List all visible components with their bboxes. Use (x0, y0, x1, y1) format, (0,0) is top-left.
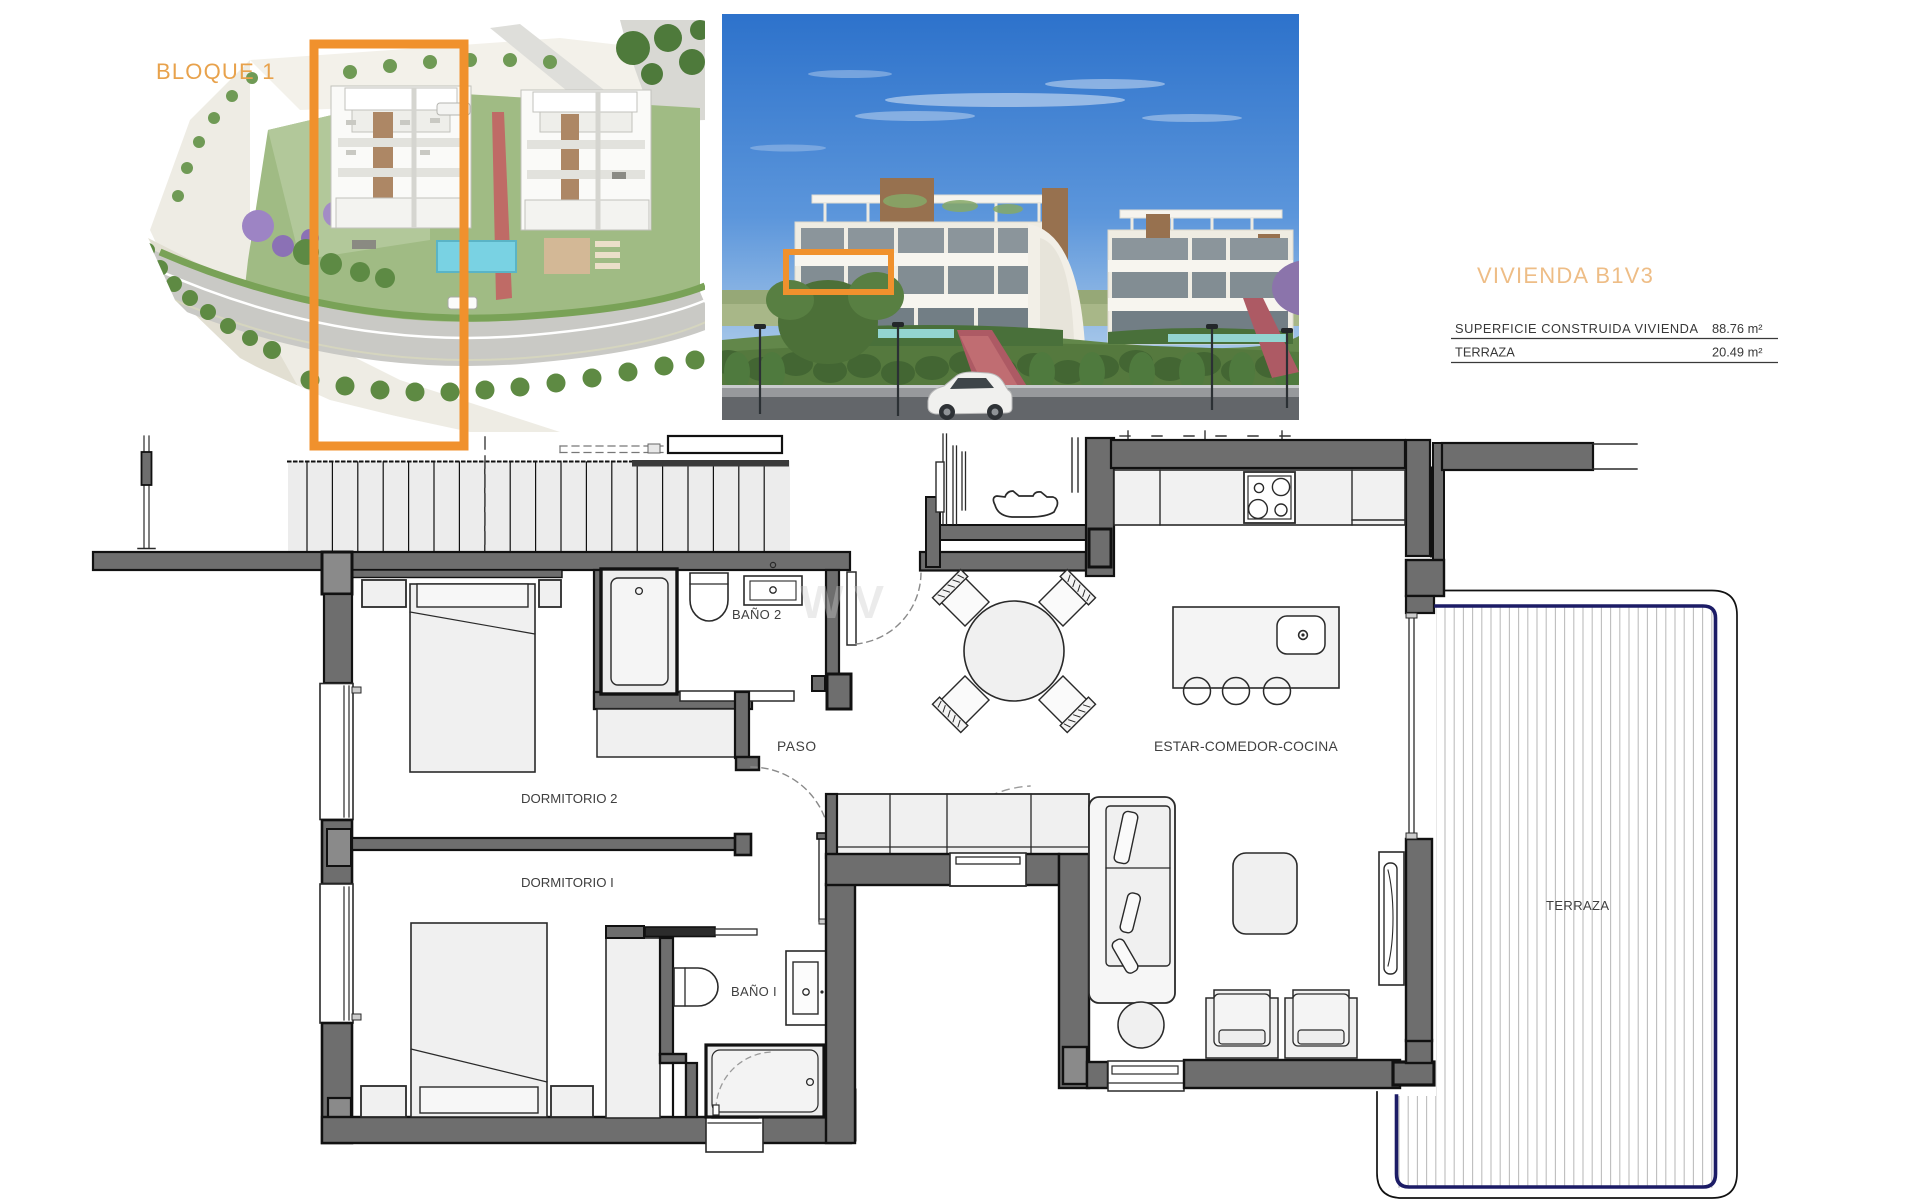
svg-text:88.76 m²: 88.76 m² (1712, 321, 1763, 336)
svg-text:BAÑO 2: BAÑO 2 (732, 607, 781, 622)
svg-text:BAÑO I: BAÑO I (731, 984, 777, 999)
svg-text:DORMITORIO I: DORMITORIO I (521, 875, 614, 890)
svg-text:BLOQUE 1: BLOQUE 1 (156, 59, 276, 84)
svg-text:DORMITORIO 2: DORMITORIO 2 (521, 791, 617, 806)
svg-text:SUPERFICIE CONSTRUIDA VIVIENDA: SUPERFICIE CONSTRUIDA VIVIENDA (1455, 321, 1698, 336)
svg-text:ESTAR-COMEDOR-COCINA: ESTAR-COMEDOR-COCINA (1154, 739, 1338, 754)
svg-text:PASO: PASO (777, 739, 817, 754)
svg-text:WV: WV (800, 576, 894, 628)
svg-text:TERRAZA: TERRAZA (1455, 345, 1515, 360)
svg-text:TERRAZA: TERRAZA (1546, 898, 1609, 913)
svg-text:VIVIENDA B1V3: VIVIENDA B1V3 (1477, 263, 1654, 288)
svg-text:20.49 m²: 20.49 m² (1712, 345, 1763, 360)
